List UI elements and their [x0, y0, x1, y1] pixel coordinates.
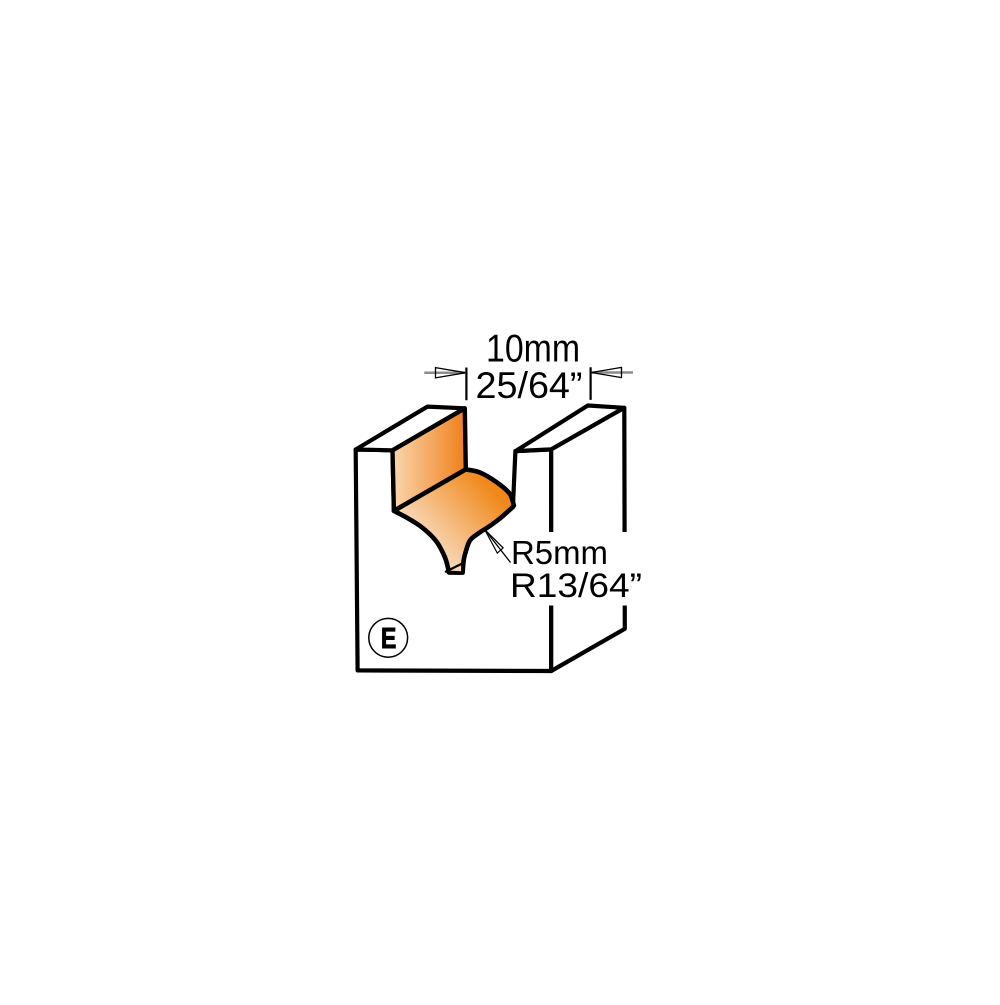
svg-text:R13/64”: R13/64”: [510, 567, 642, 605]
svg-text:E: E: [381, 623, 397, 655]
svg-text:25/64”: 25/64”: [476, 364, 583, 406]
